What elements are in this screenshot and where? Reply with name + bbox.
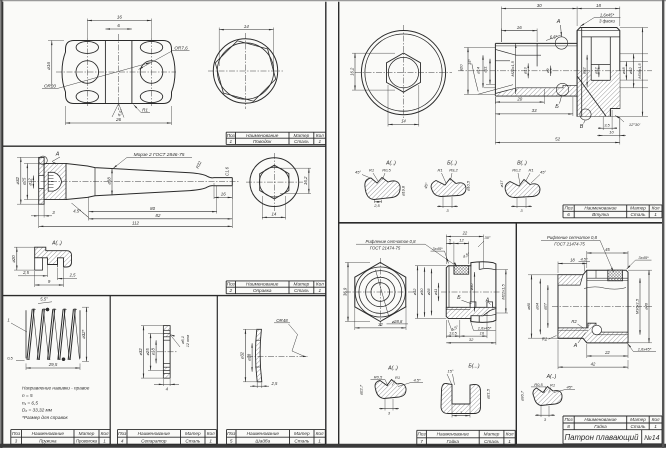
- svg-text:1: 1: [460, 410, 462, 415]
- svg-text:⌀25: ⌀25: [145, 348, 150, 356]
- svg-text:2,5: 2,5: [271, 381, 278, 386]
- svg-text:⌀32: ⌀32: [412, 288, 417, 296]
- svg-text:⌀18: ⌀18: [106, 177, 111, 185]
- svg-text:Пружина: Пружина: [39, 438, 57, 443]
- svg-text:Сталь: Сталь: [185, 438, 200, 443]
- svg-text:⌀5,1: ⌀5,1: [180, 336, 185, 344]
- svg-text:Кол: Кол: [316, 431, 324, 436]
- svg-text:⌀32: ⌀32: [628, 67, 633, 75]
- svg-text:Наименование: Наименование: [247, 431, 280, 436]
- svg-text:82: 82: [156, 213, 161, 218]
- svg-text:52: 52: [555, 137, 560, 142]
- svg-text:R1: R1: [528, 168, 533, 173]
- svg-text:Матер: Матер: [294, 133, 310, 138]
- svg-text:14: 14: [271, 212, 276, 217]
- svg-text:36,9: 36,9: [342, 287, 347, 296]
- svg-text:⌀40: ⌀40: [526, 302, 531, 310]
- svg-text:М36х1,5: М36х1,5: [634, 298, 639, 314]
- svg-text:⌀12: ⌀12: [593, 67, 598, 75]
- svg-text:42: 42: [591, 361, 596, 366]
- svg-text:12 отв: 12 отв: [186, 335, 190, 348]
- svg-text:16: 16: [517, 25, 522, 30]
- svg-text:⌀21,5: ⌀21,5: [486, 388, 491, 399]
- svg-text:16: 16: [480, 330, 485, 335]
- svg-text:ГОСТ 21474-75: ГОСТ 21474-75: [370, 246, 401, 251]
- svg-text:R1: R1: [142, 108, 148, 113]
- svg-text:3 фаски: 3 фаски: [599, 19, 615, 24]
- svg-text:Сталь: Сталь: [294, 139, 309, 144]
- svg-text:Кол: Кол: [652, 417, 660, 422]
- svg-text:Наименование: Наименование: [584, 417, 617, 422]
- svg-text:16,2: 16,2: [303, 176, 308, 185]
- svg-text:1: 1: [7, 318, 9, 323]
- svg-text:Б(..): Б(..): [447, 161, 457, 167]
- svg-text:7: 7: [420, 439, 423, 444]
- svg-text:30: 30: [537, 3, 542, 8]
- svg-text:Кол: Кол: [652, 206, 660, 211]
- svg-text:⌀17: ⌀17: [499, 180, 504, 188]
- svg-text:Сталь: Сталь: [631, 212, 646, 217]
- svg-text:⌀19,8: ⌀19,8: [401, 185, 406, 196]
- svg-text:Поз: Поз: [118, 431, 127, 436]
- svg-text:Сталь: Сталь: [294, 288, 309, 293]
- svg-text:Б(...): Б(...): [468, 364, 479, 370]
- svg-text:⌀32: ⌀32: [138, 348, 143, 356]
- svg-text:Наименование: Наименование: [246, 282, 279, 287]
- svg-text:2,5: 2,5: [22, 270, 29, 275]
- svg-text:⌀34: ⌀34: [535, 302, 540, 310]
- svg-text:22: 22: [462, 231, 468, 236]
- svg-text:Направление навивки - правое: Направление навивки - правое: [22, 386, 90, 391]
- svg-text:⌀9: ⌀9: [545, 68, 550, 73]
- svg-text:А(..): А(..): [546, 374, 557, 380]
- svg-text:15°: 15°: [447, 369, 453, 374]
- svg-text:⌀11: ⌀11: [483, 66, 488, 73]
- svg-text:OR7,6: OR7,6: [174, 46, 188, 51]
- svg-text:Матер: Матер: [484, 432, 500, 437]
- svg-text:6: 6: [567, 212, 570, 217]
- svg-text:16,2: 16,2: [349, 67, 354, 76]
- svg-text:3х45*: 3х45*: [638, 255, 649, 260]
- svg-text:Поз: Поз: [565, 417, 574, 422]
- svg-text:Сепаратор: Сепаратор: [141, 438, 167, 443]
- svg-text:Поз: Поз: [12, 431, 21, 436]
- svg-text:8: 8: [567, 424, 570, 429]
- svg-text:А: А: [573, 343, 578, 349]
- svg-text:⌀46: ⌀46: [643, 302, 648, 310]
- svg-text:33: 33: [532, 108, 537, 113]
- svg-text:45*: 45*: [566, 385, 572, 390]
- svg-text:Наименование: Наименование: [246, 133, 279, 138]
- svg-text:6: 6: [117, 23, 120, 28]
- svg-text:Матер: Матер: [294, 282, 310, 287]
- svg-text:5,5°: 5,5°: [40, 297, 48, 302]
- svg-text:14: 14: [401, 119, 406, 124]
- svg-text:1: 1: [103, 438, 105, 443]
- svg-text:3,5: 3,5: [604, 122, 610, 127]
- svg-text:Поз: Поз: [227, 431, 236, 436]
- svg-text:⌀13: ⌀13: [523, 67, 528, 75]
- svg-text:R1: R1: [437, 168, 442, 173]
- svg-text:⌀18: ⌀18: [150, 348, 155, 356]
- svg-text:16: 16: [221, 192, 226, 197]
- svg-text:4,5*: 4,5*: [413, 378, 421, 383]
- svg-text:Кол: Кол: [207, 431, 215, 436]
- svg-text:32: 32: [469, 337, 474, 342]
- svg-text:А(..): А(..): [387, 366, 398, 372]
- svg-text:1: 1: [318, 438, 321, 443]
- svg-text:⌀30: ⌀30: [419, 288, 424, 296]
- svg-text:А(..): А(..): [51, 241, 62, 247]
- svg-text:80: 80: [150, 206, 155, 211]
- svg-text:А: А: [485, 297, 490, 303]
- svg-text:D₂ = 33,32 мм: D₂ = 33,32 мм: [22, 408, 53, 413]
- svg-text:1: 1: [508, 439, 511, 444]
- svg-text:⌀18: ⌀18: [621, 67, 626, 75]
- svg-text:⌀11: ⌀11: [433, 289, 438, 296]
- svg-text:26: 26: [115, 117, 122, 122]
- svg-text:⌀32: ⌀32: [240, 351, 245, 359]
- svg-text:R0,5: R0,5: [534, 382, 543, 387]
- svg-text:⌀20: ⌀20: [458, 64, 463, 72]
- svg-text:⌀32: ⌀32: [582, 67, 587, 75]
- svg-text:Матер: Матер: [630, 206, 646, 211]
- svg-text:4,5*: 4,5*: [73, 209, 81, 214]
- svg-text:Матер: Матер: [630, 417, 646, 422]
- svg-text:1: 1: [209, 438, 212, 443]
- svg-text:Поз: Поз: [227, 282, 236, 287]
- svg-text:⌀22,7: ⌀22,7: [359, 384, 364, 395]
- svg-text:Рифление сетчатое 0,8: Рифление сетчатое 0,8: [365, 239, 416, 244]
- svg-text:⌀25: ⌀25: [22, 177, 27, 185]
- svg-text:13,5: 13,5: [449, 330, 458, 335]
- svg-text:R2: R2: [571, 319, 577, 324]
- svg-text:Рифление сетчатое 0,8: Рифление сетчатое 0,8: [547, 235, 598, 240]
- svg-text:4,5*: 4,5*: [580, 256, 588, 261]
- svg-text:1: 1: [229, 139, 232, 144]
- svg-text:⌀28,8: ⌀28,8: [392, 319, 403, 324]
- svg-text:R1: R1: [369, 168, 374, 173]
- svg-text:12: 12: [459, 238, 464, 243]
- svg-text:R0,5: R0,5: [374, 375, 383, 380]
- svg-text:Кол: Кол: [316, 282, 324, 287]
- svg-text:М22х1,5: М22х1,5: [510, 60, 515, 76]
- svg-text:32: 32: [378, 322, 383, 327]
- svg-text:n = 5: n = 5: [22, 393, 33, 398]
- svg-text:29,5: 29,5: [48, 362, 58, 367]
- svg-text:n₁ = 6,5: n₁ = 6,5: [22, 400, 38, 405]
- svg-text:14: 14: [244, 24, 250, 29]
- svg-text:Наименование: Наименование: [32, 431, 65, 436]
- svg-text:Поводок: Поводок: [253, 139, 272, 144]
- svg-text:С1,6: С1,6: [225, 166, 230, 176]
- svg-text:Оправка: Оправка: [253, 288, 272, 293]
- svg-text:45°: 45°: [355, 170, 361, 175]
- svg-text:В(..): В(..): [517, 161, 527, 167]
- svg-text:А: А: [556, 19, 561, 25]
- svg-text:Шайба: Шайба: [255, 437, 270, 443]
- svg-text:OR20: OR20: [44, 84, 56, 89]
- svg-text:15°: 15°: [467, 59, 472, 65]
- svg-text:ГОСТ 21474-75: ГОСТ 21474-75: [554, 241, 585, 246]
- svg-text:Наименование: Наименование: [584, 206, 617, 211]
- svg-text:*Размер для справок: *Размер для справок: [22, 415, 68, 420]
- svg-text:⌀18: ⌀18: [246, 353, 251, 361]
- svg-text:2,5: 2,5: [69, 273, 76, 278]
- svg-text:20: 20: [516, 96, 522, 101]
- svg-text:45°: 45°: [540, 170, 546, 175]
- svg-text:1: 1: [318, 288, 321, 293]
- svg-text:2,5: 2,5: [373, 203, 380, 208]
- svg-text:2: 2: [228, 288, 232, 293]
- svg-text:18: 18: [596, 3, 601, 8]
- svg-text:OR48: OR48: [276, 318, 288, 323]
- svg-text:Кол: Кол: [506, 432, 514, 437]
- svg-text:Патрон плавающий: Патрон плавающий: [565, 433, 640, 442]
- svg-text:Сталь: Сталь: [484, 439, 499, 444]
- svg-text:№14: №14: [644, 435, 659, 442]
- svg-text:Матер: Матер: [185, 431, 201, 436]
- svg-text:Матер: Матер: [79, 431, 95, 436]
- svg-text:22: 22: [604, 350, 610, 355]
- svg-text:В: В: [580, 124, 584, 130]
- svg-text:0,5: 0,5: [7, 355, 13, 360]
- svg-text:5: 5: [230, 438, 233, 443]
- svg-text:Втулка: Втулка: [592, 212, 609, 217]
- svg-text:R9,2: R9,2: [449, 168, 458, 173]
- svg-text:1,6х45*: 1,6х45*: [638, 347, 652, 352]
- svg-text:18: 18: [570, 258, 575, 263]
- svg-text:А: А: [55, 151, 60, 157]
- svg-text:⌀12: ⌀12: [28, 178, 33, 186]
- svg-text:Сталь: Сталь: [294, 438, 309, 443]
- svg-text:1: 1: [654, 424, 657, 429]
- svg-text:12°30': 12°30': [629, 122, 640, 127]
- svg-text:М36х1,5: М36х1,5: [637, 63, 642, 79]
- svg-text:Поз: Поз: [565, 206, 574, 211]
- svg-text:А(..): А(..): [385, 161, 396, 167]
- svg-text:⌀32*: ⌀32*: [81, 329, 86, 339]
- svg-text:R2: R2: [542, 337, 548, 342]
- svg-text:45: 45: [605, 247, 610, 252]
- svg-text:R0,5: R0,5: [382, 168, 391, 173]
- svg-text:⌀16: ⌀16: [46, 62, 51, 70]
- svg-text:R1: R1: [395, 375, 400, 380]
- svg-text:Гайка: Гайка: [447, 438, 460, 444]
- svg-text:1,6х45*: 1,6х45*: [600, 13, 615, 18]
- svg-text:Кол: Кол: [316, 133, 324, 138]
- svg-text:16: 16: [117, 15, 123, 20]
- svg-text:⌀20: ⌀20: [11, 255, 16, 263]
- svg-text:Б: Б: [555, 104, 559, 110]
- svg-text:4: 4: [121, 438, 124, 443]
- svg-text:R0,2: R0,2: [512, 168, 521, 173]
- svg-text:Матер: Матер: [294, 431, 310, 436]
- svg-text:⌀36,7: ⌀36,7: [520, 390, 525, 401]
- svg-text:Поз: Поз: [227, 133, 236, 138]
- svg-text:Наименование: Наименование: [437, 432, 470, 437]
- svg-text:⌀14: ⌀14: [475, 66, 480, 74]
- svg-text:⌀28: ⌀28: [426, 288, 431, 296]
- svg-text:М22х1,5: М22х1,5: [500, 284, 505, 300]
- svg-text:1: 1: [318, 139, 321, 144]
- svg-text:10: 10: [609, 130, 614, 135]
- svg-text:Кол: Кол: [101, 431, 109, 436]
- svg-text:1: 1: [654, 212, 657, 217]
- svg-text:Наименование: Наименование: [138, 431, 171, 436]
- svg-text:112: 112: [132, 221, 140, 226]
- svg-text:⌀27: ⌀27: [542, 302, 547, 310]
- svg-text:⌀10,5: ⌀10,5: [466, 180, 471, 191]
- svg-text:30°: 30°: [484, 235, 490, 240]
- svg-text:Поз: Поз: [418, 432, 427, 437]
- svg-text:Сталь: Сталь: [631, 424, 646, 429]
- svg-text:⌀32: ⌀32: [15, 176, 20, 184]
- svg-text:Проволока: Проволока: [76, 438, 98, 443]
- svg-text:⌀30: ⌀30: [469, 283, 474, 291]
- svg-text:Гайка: Гайка: [594, 423, 607, 429]
- svg-text:R1: R1: [550, 382, 555, 387]
- svg-text:3х45*: 3х45*: [432, 246, 443, 251]
